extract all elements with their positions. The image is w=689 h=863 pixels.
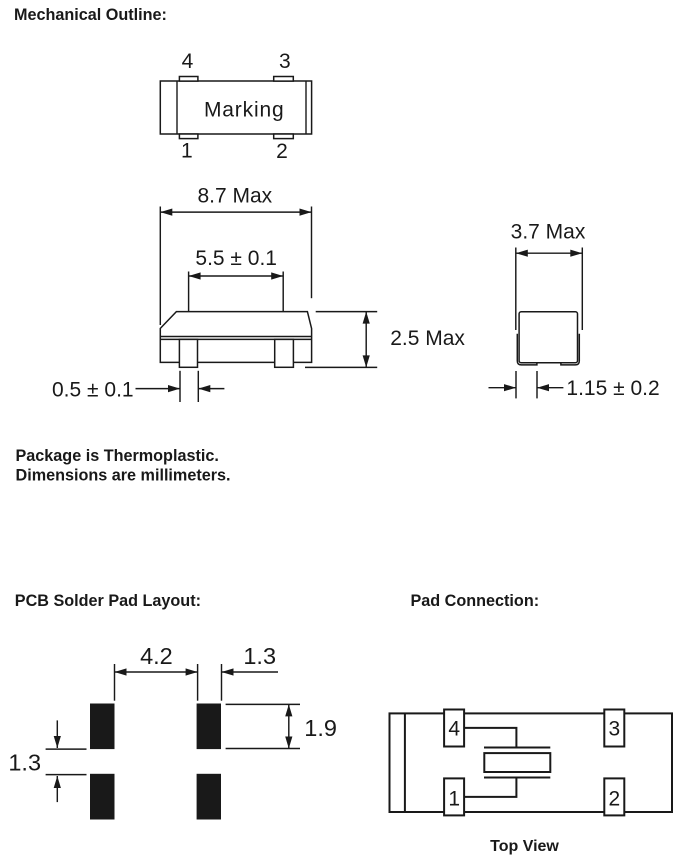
svg-text:1: 1 — [448, 787, 460, 810]
svg-text:1.3: 1.3 — [243, 643, 276, 669]
svg-text:Mechanical Outline:: Mechanical Outline: — [14, 6, 167, 24]
svg-text:5.5 ± 0.1: 5.5 ± 0.1 — [195, 247, 277, 270]
svg-text:2: 2 — [609, 787, 621, 810]
svg-text:Dimensions are millimeters.: Dimensions are millimeters. — [16, 466, 231, 484]
svg-text:Top View: Top View — [490, 838, 559, 855]
svg-text:Pad Connection:: Pad Connection: — [411, 592, 540, 610]
svg-text:1: 1 — [181, 140, 193, 163]
svg-text:3.7 Max: 3.7 Max — [511, 221, 586, 244]
svg-text:3: 3 — [609, 717, 621, 740]
svg-text:4: 4 — [448, 717, 460, 740]
svg-text:2: 2 — [276, 140, 288, 163]
svg-text:4.2: 4.2 — [140, 643, 173, 669]
svg-text:PCB Solder Pad Layout:: PCB Solder Pad Layout: — [15, 592, 201, 610]
svg-text:1.9: 1.9 — [304, 715, 337, 741]
svg-text:1.15 ± 0.2: 1.15 ± 0.2 — [566, 377, 659, 400]
svg-text:2.5 Max: 2.5 Max — [390, 327, 465, 350]
svg-text:0.5 ± 0.1: 0.5 ± 0.1 — [52, 378, 134, 401]
svg-text:3: 3 — [279, 50, 291, 73]
svg-text:8.7 Max: 8.7 Max — [197, 185, 272, 208]
svg-text:Package is Thermoplastic.: Package is Thermoplastic. — [16, 447, 219, 465]
svg-text:Marking: Marking — [204, 98, 284, 121]
svg-text:4: 4 — [182, 50, 194, 73]
svg-text:1.3: 1.3 — [8, 749, 41, 775]
